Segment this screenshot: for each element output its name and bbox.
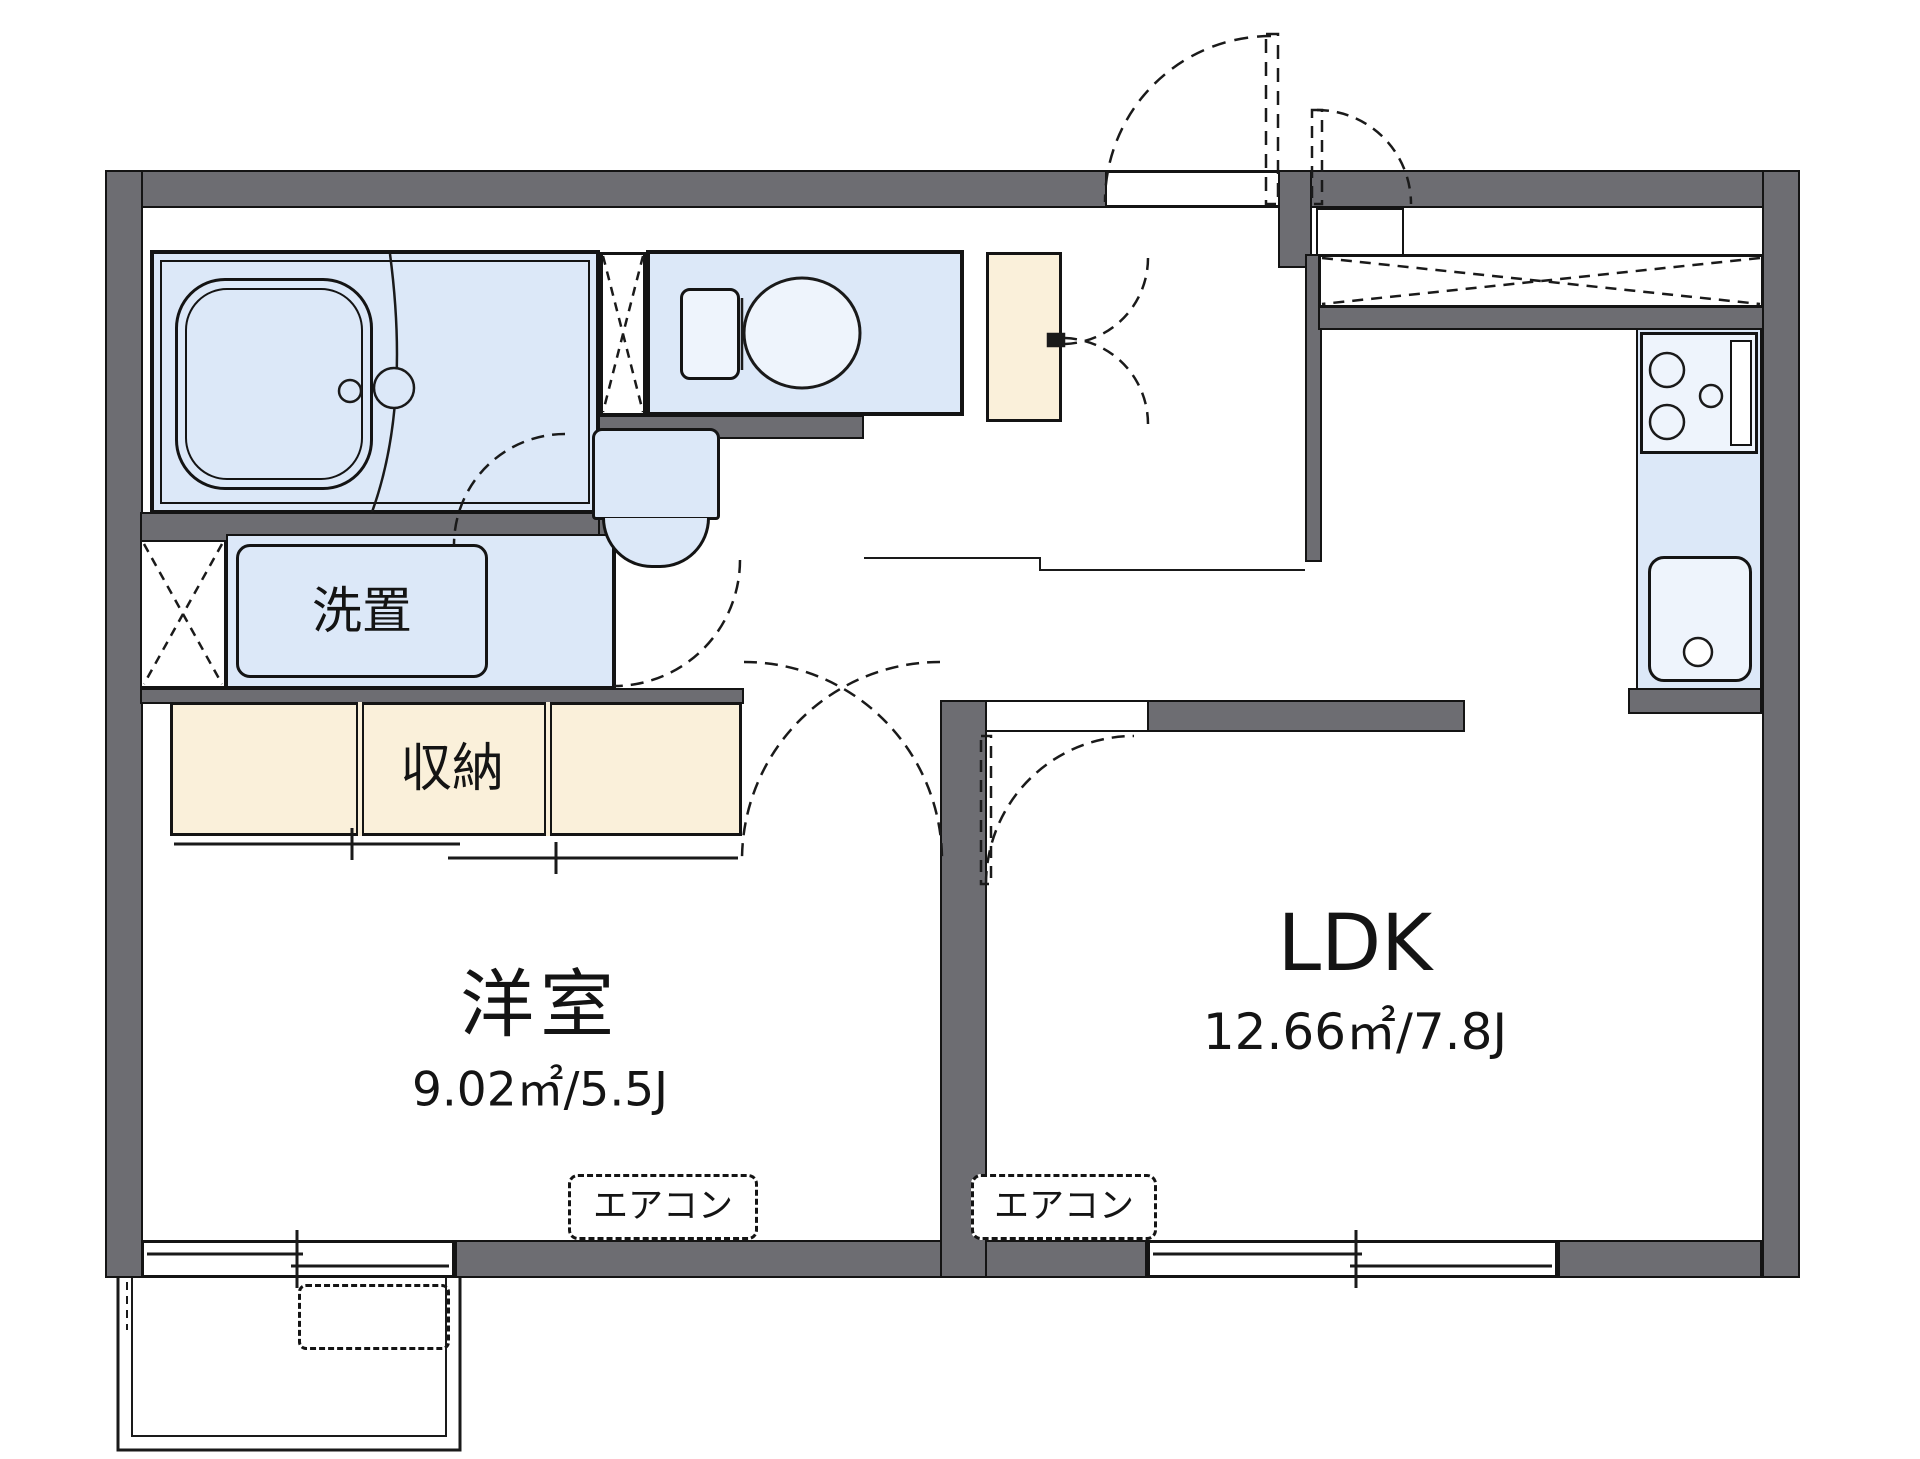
- wall-right: [1762, 170, 1800, 1278]
- western-door-arc-right: [742, 662, 940, 860]
- window-western-room: [141, 1240, 455, 1278]
- wall-hall-ldk: [1147, 700, 1465, 732]
- washbasin: [592, 428, 720, 520]
- western-door-arc-left: [744, 662, 942, 860]
- entry-door-opening: [1107, 170, 1278, 208]
- ldk-label: LDK: [1278, 905, 1433, 983]
- western-room-size: 9.02㎡/5.5J: [412, 1067, 668, 1114]
- vent-shaft: [600, 252, 646, 416]
- window-ldk: [1147, 1240, 1558, 1278]
- washbasin-bowl: [602, 518, 710, 568]
- wall-kitchen-stub: [1628, 688, 1762, 714]
- kitchen-sink: [1648, 556, 1752, 682]
- wall-top-right: [1278, 170, 1800, 208]
- genkan-step-line: [864, 558, 1305, 570]
- floor-plan: 洋室 9.02㎡/5.5J LDK 12.66㎡/7.8J 収納 洗置 エアコン…: [0, 0, 1920, 1459]
- shoe-cabinet: [986, 252, 1062, 422]
- aircon-label-ldk: エアコン: [994, 1190, 1134, 1225]
- ldk-door-arc: [986, 736, 1134, 884]
- closet-label: 収納: [400, 743, 504, 795]
- wall-bottom-center: [455, 1240, 1147, 1278]
- outdoor-unit: [298, 1284, 450, 1350]
- ldk-size: 12.66㎡/7.8J: [1203, 1007, 1507, 1057]
- upper-cabinet: [1318, 254, 1764, 308]
- toilet-tank: [680, 288, 740, 380]
- ldk-door-opening: [987, 700, 1147, 732]
- laundry-label: 洗置: [312, 586, 412, 636]
- closet-divider-1: [356, 702, 364, 836]
- wall-top-left: [105, 170, 1107, 208]
- western-room-label: 洋室: [460, 968, 620, 1042]
- shoe-door-arc-bottom: [1062, 338, 1148, 424]
- bathtub-inner-line: [185, 288, 363, 480]
- wall-bottom-right: [1558, 1240, 1762, 1278]
- wall-below-upper-cabinet: [1318, 306, 1764, 330]
- aircon-label-western: エアコン: [593, 1190, 733, 1225]
- wall-left: [105, 170, 143, 1278]
- closet-divider-2: [544, 702, 552, 836]
- pipe-space: [140, 540, 226, 688]
- washroom-door-arc: [614, 560, 740, 686]
- entry-niche: [1316, 208, 1404, 256]
- stove-grill: [1730, 340, 1752, 446]
- shoe-door-arc-top: [1062, 258, 1148, 344]
